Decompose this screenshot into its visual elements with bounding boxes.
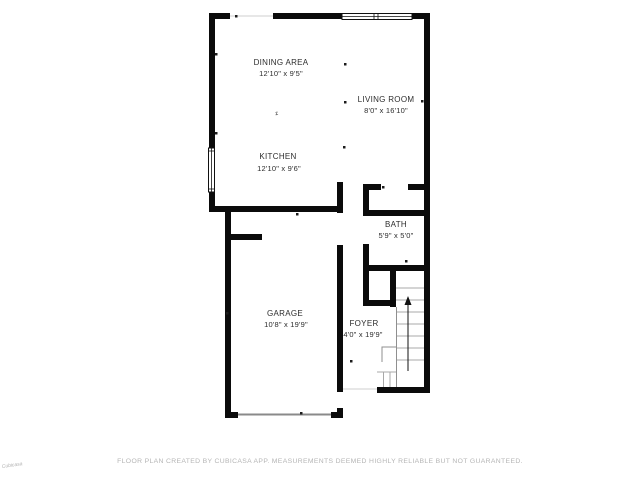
wall-segment	[225, 412, 238, 418]
wall-segment	[363, 184, 369, 216]
left-window	[209, 148, 215, 192]
cubicasa-watermark: Cubicasa	[1, 461, 23, 470]
room-dims-foyer: 4'0" x 19'9"	[343, 330, 382, 339]
room-dims-dining-area: 12'10" x 9'5"	[259, 69, 303, 78]
scan-marker-dot	[421, 100, 424, 103]
scan-marker-dot	[405, 260, 408, 263]
top-window	[342, 14, 412, 20]
room-label-dining-area: DINING AREA	[254, 58, 309, 67]
wall-segment	[337, 408, 343, 418]
wall-segment	[231, 234, 262, 240]
footer-disclaimer: FLOOR PLAN CREATED BY CUBICASA APP. MEAS…	[117, 458, 523, 465]
room-dims-bath: 5'9" x 5'0"	[379, 231, 414, 240]
floor-plan-canvas: DINING AREA 12'10" x 9'5" LIVING ROOM 8'…	[0, 0, 640, 480]
scan-marker-dot	[300, 412, 303, 415]
scan-marker-dot	[344, 63, 347, 66]
scan-marker-dot	[235, 15, 238, 18]
room-label-foyer: FOYER	[349, 319, 378, 328]
scan-marker-dot	[382, 186, 385, 189]
scan-marker-dot	[344, 101, 347, 104]
room-label-living-room: LIVING ROOM	[358, 95, 415, 104]
wall-segment	[337, 182, 343, 213]
wall-segment	[390, 270, 396, 307]
wall-segment	[225, 212, 231, 418]
scan-marker-dot	[296, 213, 299, 216]
wall-segment	[337, 245, 343, 392]
wall-segment	[209, 206, 338, 212]
room-label-garage: GARAGE	[267, 309, 303, 318]
room-dims-kitchen: 12'10" x 9'6"	[257, 164, 301, 173]
scan-marker-dot	[226, 312, 229, 315]
scan-marker-dot	[215, 53, 218, 56]
scan-marker-dot	[343, 146, 346, 149]
room-dims-garage: 10'8" x 19'9"	[264, 320, 308, 329]
wall-segment	[273, 13, 342, 19]
wall-segment	[209, 13, 215, 148]
wall-segment	[363, 210, 424, 216]
scan-marker-dot	[350, 360, 353, 363]
wall-segment	[408, 184, 424, 190]
wall-segment	[377, 387, 430, 393]
room-label-kitchen: KITCHEN	[259, 152, 296, 161]
compass-marker: z	[275, 111, 279, 117]
interior-walls	[231, 182, 424, 418]
room-dims-living-room: 8'0" x 16'10"	[364, 106, 408, 115]
room-label-bath: BATH	[385, 220, 407, 229]
wall-segment	[424, 13, 430, 393]
wall-segment	[363, 244, 369, 306]
wall-segment	[363, 300, 393, 306]
stair-landing-step	[382, 347, 396, 362]
floor-plan-page: DINING AREA 12'10" x 9'5" LIVING ROOM 8'…	[0, 0, 640, 480]
scan-marker-dot	[215, 132, 218, 135]
